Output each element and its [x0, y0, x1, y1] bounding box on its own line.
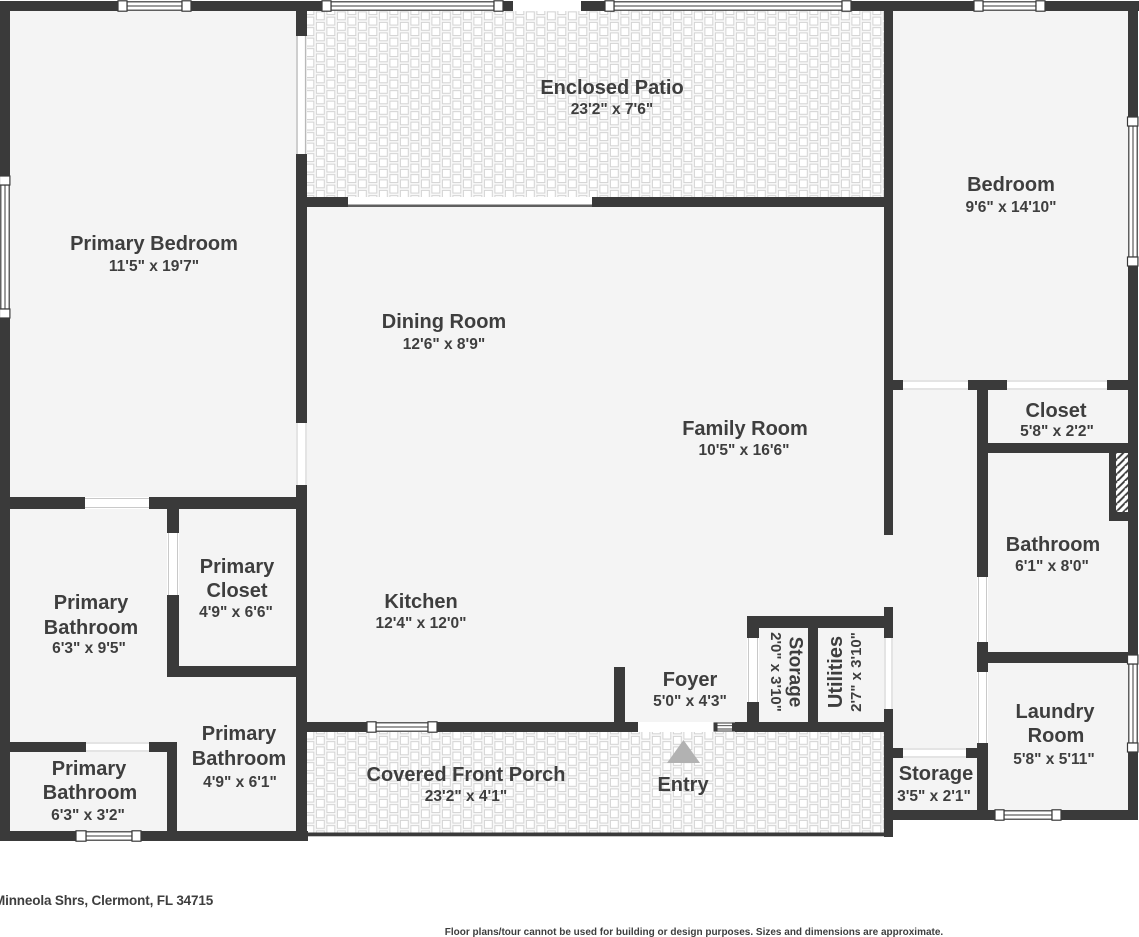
svg-text:2'0" x 3'10": 2'0" x 3'10" [767, 632, 784, 712]
svg-text:23'2" x 4'1": 23'2" x 4'1" [425, 788, 507, 805]
svg-text:5'0" x 4'3": 5'0" x 4'3" [653, 693, 727, 710]
svg-text:Enclosed Patio: Enclosed Patio [540, 77, 683, 99]
svg-text:3'5" x 2'1": 3'5" x 2'1" [897, 788, 971, 805]
svg-text:Bedroom: Bedroom [967, 174, 1055, 196]
svg-text:Storage: Storage [899, 763, 973, 785]
svg-text:Foyer: Foyer [663, 669, 718, 691]
svg-text:Closet: Closet [206, 580, 267, 602]
svg-text:10'5" x 16'6": 10'5" x 16'6" [698, 442, 789, 459]
svg-text:Primary Bedroom: Primary Bedroom [70, 233, 238, 255]
svg-text:Primary: Primary [202, 723, 277, 745]
svg-text:Floor plans/tour cannot be use: Floor plans/tour cannot be used for buil… [445, 927, 944, 937]
svg-text:4'9" x 6'1": 4'9" x 6'1" [203, 774, 277, 791]
svg-text:Covered Front Porch: Covered Front Porch [367, 764, 566, 786]
svg-text:4'9" x 6'6": 4'9" x 6'6" [199, 604, 273, 621]
svg-text:Bathroom: Bathroom [44, 617, 138, 639]
svg-text:9'6" x 14'10": 9'6" x 14'10" [965, 199, 1056, 216]
svg-text:Primary: Primary [52, 758, 127, 780]
svg-text:Primary: Primary [200, 556, 275, 578]
svg-text:12'6" x 8'9": 12'6" x 8'9" [403, 336, 485, 353]
svg-text:Entry: Entry [657, 774, 709, 796]
svg-text:6'1" x 8'0": 6'1" x 8'0" [1015, 558, 1089, 575]
svg-text:Family Room: Family Room [682, 418, 808, 440]
svg-text:Bathroom: Bathroom [43, 782, 137, 804]
svg-text:Room: Room [1028, 725, 1085, 747]
svg-text:2'7" x 3'10": 2'7" x 3'10" [848, 632, 865, 712]
svg-text:Kitchen: Kitchen [384, 591, 457, 613]
svg-text:6'3" x 9'5": 6'3" x 9'5" [52, 640, 126, 657]
svg-text:23'2" x 7'6": 23'2" x 7'6" [571, 101, 653, 118]
svg-text:Bathroom: Bathroom [1006, 534, 1100, 556]
svg-text:11'5" x 19'7": 11'5" x 19'7" [109, 258, 199, 275]
svg-text:Utilities: Utilities [825, 636, 847, 708]
svg-text:Laundry: Laundry [1016, 701, 1096, 723]
svg-text:5'8" x 2'2": 5'8" x 2'2" [1020, 423, 1094, 440]
svg-text:Primary: Primary [54, 592, 129, 614]
svg-text:Dining Room: Dining Room [382, 311, 506, 333]
svg-text:Closet: Closet [1025, 400, 1086, 422]
svg-text:Bathroom: Bathroom [192, 748, 286, 770]
svg-text:Storage: Storage [785, 637, 806, 708]
svg-text:Minneola Shrs, Clermont, FL 34: Minneola Shrs, Clermont, FL 34715 [0, 893, 214, 908]
svg-text:6'3" x 3'2": 6'3" x 3'2" [51, 807, 125, 824]
svg-text:5'8" x 5'11": 5'8" x 5'11" [1013, 751, 1095, 768]
svg-text:12'4" x 12'0": 12'4" x 12'0" [375, 615, 466, 632]
